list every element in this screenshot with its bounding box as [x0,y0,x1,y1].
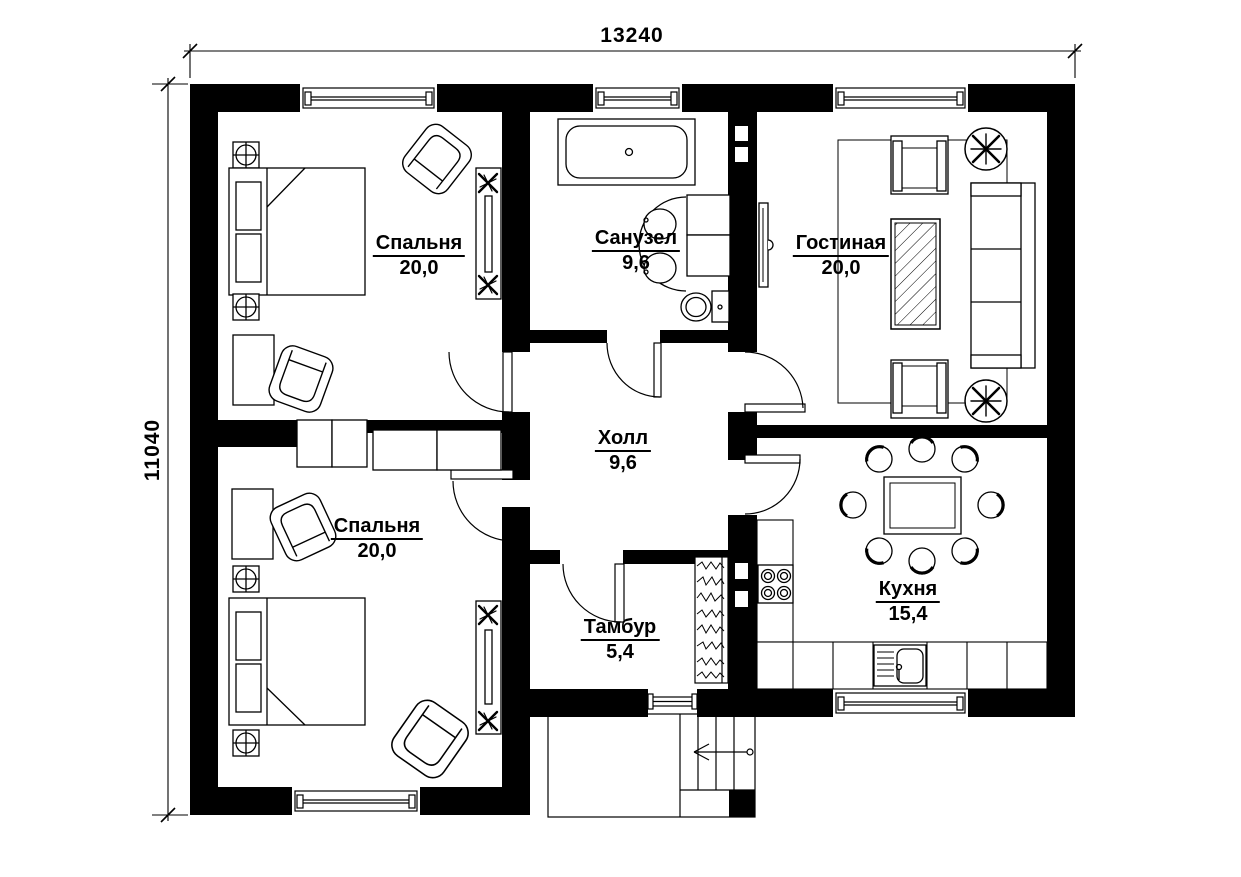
room-area: 20,0 [331,540,423,563]
room-label-vestibule: Тамбур 5,4 [581,616,660,664]
room-name: Кухня [876,578,940,603]
dimension-width: 13240 [600,24,663,48]
room-area: 20,0 [793,257,889,280]
lamp-symbol-icon [233,142,259,168]
stove-icon [758,565,793,603]
window-icon [833,84,968,112]
kitchen-sink-icon [874,645,926,686]
dimension-height: 11040 [141,419,165,481]
porch [548,714,755,817]
dining-table-icon [840,436,1004,574]
tv-stand-icon [759,203,773,287]
floor-plan-canvas: 13240 11040 Спальня 20,0 Санузел 9,6 Гос… [0,0,1241,877]
dresser-icon [233,335,274,405]
room-label-kitchen: Кухня 15,4 [876,578,940,626]
room-area: 5,4 [581,641,660,664]
window-icon [292,787,420,815]
coat-rack-icon [695,557,728,683]
rug-icon [891,219,940,329]
double-bed-icon [229,598,365,725]
window-icon [300,84,437,112]
toilet-icon [681,291,729,322]
lamp-symbol-icon [233,566,259,592]
room-area: 9,6 [595,452,651,475]
door-icon [745,352,805,412]
door-icon [449,352,512,412]
room-area: 9,6 [592,252,680,275]
room-area: 15,4 [876,603,940,626]
door-icon [607,343,661,397]
radiator-icon [476,168,501,299]
room-name: Холл [595,427,651,452]
bathroom-furniture [558,119,730,322]
armchair-icon [891,136,948,194]
room-label-bathroom: Санузел 9,6 [592,227,680,275]
plant-icon [965,380,1007,422]
room-name: Спальня [373,232,465,257]
room-label-bedroom-2: Спальня 20,0 [331,515,423,563]
armchair-icon [387,695,474,783]
room-label-hall: Холл 9,6 [595,427,651,475]
lamp-symbol-icon [233,730,259,756]
room-name: Гостиная [793,232,889,257]
armchair-icon [266,343,337,416]
window-icon [833,689,968,717]
lamp-symbol-icon [233,294,259,320]
stairs-icon [680,714,755,817]
dresser-icon [232,489,273,559]
room-label-bedroom-1: Спальня 20,0 [373,232,465,280]
entrance-door-icon [648,689,697,717]
vestibule-furniture [695,557,728,683]
room-label-living-room: Гостиная 20,0 [793,232,889,280]
window-icon [593,84,682,112]
door-icon [745,455,800,514]
bathtub-icon [558,119,695,185]
door-icon [563,564,624,622]
room-name: Санузел [592,227,680,252]
sofa-icon [971,183,1035,368]
room-area: 20,0 [373,257,465,280]
armchair-icon [266,489,339,564]
armchair-icon [891,360,948,418]
radiator-icon [476,601,501,734]
armchair-icon [398,120,476,199]
room-name: Спальня [331,515,423,540]
double-bed-icon [229,168,365,295]
room-name: Тамбур [581,616,660,641]
plant-icon [965,128,1007,170]
kitchen-furniture [757,436,1047,689]
